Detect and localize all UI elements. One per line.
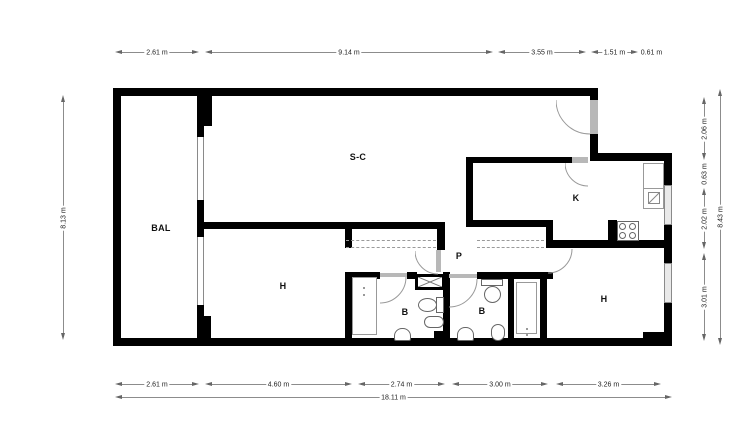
toilet-left-bowl <box>418 298 437 312</box>
dim-bottom-4: 3.26 m <box>556 379 661 390</box>
room-label-passage: P <box>456 251 462 261</box>
dim-bottom-0: 2.61 m <box>115 379 199 390</box>
bedroom-left-door-arc <box>415 250 440 275</box>
wall-outer-top <box>113 88 598 96</box>
dim-top-4-label: 0.61 m <box>639 49 664 56</box>
wall-bath-left <box>345 272 352 338</box>
dim-top-3: 1.51 m <box>591 47 638 58</box>
stove-burner-3 <box>619 232 626 239</box>
dim-right-3-label: 3.01 m <box>701 284 708 309</box>
stove-burner-1 <box>619 223 626 230</box>
dim-bottom-1: 4.60 m <box>205 379 352 390</box>
sink-left <box>394 328 411 341</box>
room-label-living: S-C <box>350 152 366 162</box>
floor-plan-canvas: BAL S-C K H P B B H 2.61 m 9.14 m 3.55 m… <box>0 0 732 424</box>
wall-outer-bottom <box>113 338 672 346</box>
bidet-right <box>491 324 505 341</box>
room-label-bedroom-left: H <box>280 281 287 291</box>
dim-right-1: 0.63 m <box>699 164 710 184</box>
wardrobe-column <box>516 282 537 334</box>
toilet-right-tank <box>481 279 503 286</box>
wall-closet-right <box>437 222 445 250</box>
bath-right-door-arc <box>449 279 478 308</box>
bedroom-right-window <box>664 263 672 303</box>
dim-bottom-total: 18.11 m <box>115 392 672 403</box>
bidet-left <box>424 316 444 328</box>
wall-kitchen-left <box>466 157 473 227</box>
dim-right-2-label: 2.02 m <box>701 206 708 231</box>
dim-top-1-label: 9.14 m <box>336 49 361 56</box>
dim-left-label: 8.13 m <box>60 205 67 230</box>
dim-bottom-1-label: 4.60 m <box>266 381 291 388</box>
wall-kitchen-bottom <box>546 240 664 248</box>
wall-balcony-stub-top <box>197 96 212 126</box>
dim-right-1-label: 0.63 m <box>701 161 708 186</box>
sink-right <box>457 327 474 341</box>
dim-right-total-label: 8.43 m <box>717 204 724 229</box>
kitchen-door-arc <box>565 162 590 187</box>
dim-right-2: 2.02 m <box>699 188 710 249</box>
wall-wardrobe-right <box>540 272 547 338</box>
wall-wardrobe-left <box>508 279 514 338</box>
dim-right-3: 3.01 m <box>699 253 710 341</box>
kitchen-counter-divider <box>643 188 664 189</box>
duct-shaft <box>415 274 445 290</box>
room-label-balcony: BAL <box>151 223 170 233</box>
dim-top-4: 0.61 m <box>641 47 662 58</box>
dim-bottom-3: 3.00 m <box>452 379 548 390</box>
wall-closet-left-stub <box>345 222 352 248</box>
shower-left-knob-2 <box>363 294 365 296</box>
shower-left-knob-1 <box>363 287 365 289</box>
closet-right-dash-2 <box>477 247 544 248</box>
bedroom-right-door-arc <box>548 249 573 274</box>
bath-left-door-arc <box>380 277 407 304</box>
dim-bottom-2-label: 2.74 m <box>389 381 414 388</box>
kitchen-sink <box>648 192 660 204</box>
closet-right-dash-1 <box>477 240 544 241</box>
closet-left-dash-2 <box>346 247 436 248</box>
dim-left: 8.13 m <box>58 95 69 340</box>
dim-right-0: 2.06 m <box>699 97 710 160</box>
wall-kitchen-top <box>466 157 572 163</box>
bath-right-door-leaf <box>449 274 477 278</box>
toilet-right-bowl <box>484 286 501 303</box>
dim-bottom-total-label: 18.11 m <box>379 394 408 401</box>
wall-entry-notch-v-lower <box>590 134 598 161</box>
dim-bottom-2: 2.74 m <box>358 379 445 390</box>
dim-bottom-3-label: 3.00 m <box>487 381 512 388</box>
duct-hatch-icon <box>418 277 442 287</box>
dim-top-1: 9.14 m <box>205 47 493 58</box>
wall-balcony-stub-bottom <box>197 316 211 338</box>
dim-top-3-label: 1.51 m <box>602 49 627 56</box>
room-label-bedroom-right: H <box>601 294 608 304</box>
balcony-window-lower <box>197 237 204 305</box>
stove-burner-4 <box>629 232 636 239</box>
dim-top-0-label: 2.61 m <box>144 49 169 56</box>
wall-balcony-mid <box>197 200 204 237</box>
toilet-left-tank <box>436 297 444 313</box>
wardrobe-knob-1 <box>526 328 528 330</box>
wall-outer-left <box>113 88 121 346</box>
wall-kitchen-stove-step <box>608 220 617 242</box>
balcony-window-upper <box>197 137 204 200</box>
dim-bottom-0-label: 2.61 m <box>144 381 169 388</box>
dim-top-2: 3.55 m <box>498 47 586 58</box>
dim-bottom-4-label: 3.26 m <box>596 381 621 388</box>
dim-right-0-label: 2.06 m <box>701 116 708 141</box>
closet-left-dash-1 <box>346 240 436 241</box>
kitchen-window <box>664 185 672 225</box>
dim-top-2-label: 3.55 m <box>529 49 554 56</box>
dim-top-0: 2.61 m <box>115 47 199 58</box>
wall-bedroomright-corner-step <box>643 332 664 339</box>
wall-living-bedroom <box>197 222 445 229</box>
wall-outer-right <box>664 153 672 346</box>
room-label-bath-right: B <box>479 306 486 316</box>
wall-bathleft-corner-step <box>434 331 445 339</box>
stove-burner-2 <box>629 223 636 230</box>
dim-right-total: 8.43 m <box>715 89 726 345</box>
wall-closet2-top <box>473 220 553 227</box>
shower-left <box>352 277 377 335</box>
room-label-bath-left: B <box>402 307 409 317</box>
kitchen-sink-drain-icon <box>649 193 659 203</box>
wall-entry-notch-h <box>598 153 672 161</box>
entry-door-arc <box>556 99 592 135</box>
room-label-kitchen: K <box>573 193 580 203</box>
wardrobe-knob-2 <box>526 334 528 336</box>
